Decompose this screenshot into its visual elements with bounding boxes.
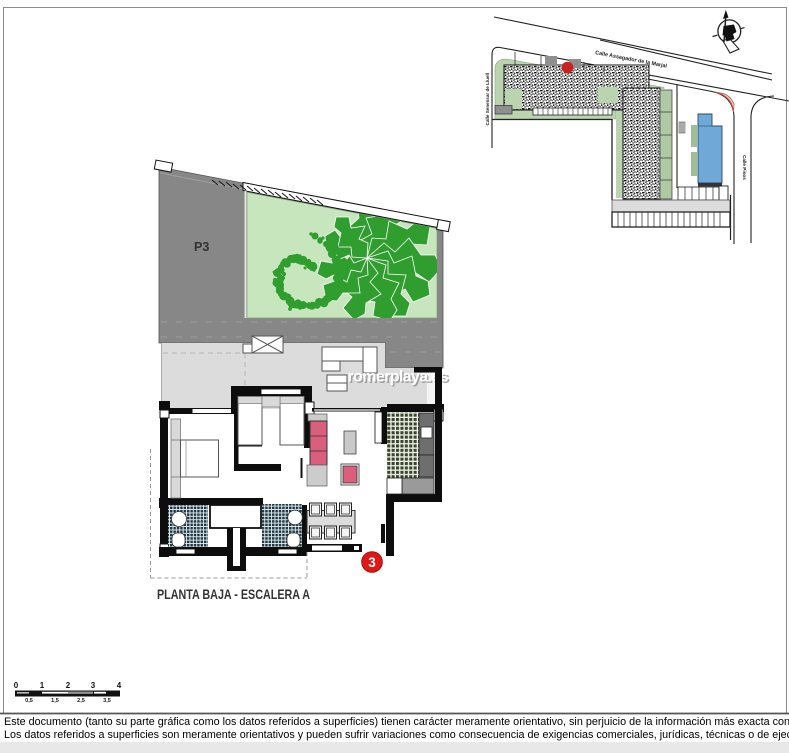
- svg-text:1,5: 1,5: [51, 698, 59, 704]
- svg-text:1: 1: [40, 681, 45, 690]
- svg-text:2: 2: [66, 681, 71, 690]
- svg-text:0: 0: [14, 681, 19, 690]
- svg-text:3: 3: [368, 555, 376, 570]
- svg-text:Calle Pinos: Calle Pinos: [742, 155, 747, 180]
- svg-text:P3: P3: [194, 240, 209, 254]
- svg-text:0,5: 0,5: [25, 698, 33, 704]
- svg-text:Los datos referidos a superfic: Los datos referidos a superficies son me…: [4, 729, 789, 741]
- svg-text:Calle Senessar de Lluell: Calle Senessar de Lluell: [485, 73, 490, 126]
- svg-text:3,5: 3,5: [103, 698, 111, 704]
- svg-text:PLANTA BAJA - ESCALERA A: PLANTA BAJA - ESCALERA A: [157, 586, 310, 602]
- svg-text:Este documento (tanto su parte: Este documento (tanto su parte gráfica c…: [4, 716, 789, 728]
- svg-text:4: 4: [117, 681, 122, 690]
- svg-text:3: 3: [91, 681, 96, 690]
- svg-text:2,5: 2,5: [77, 698, 85, 704]
